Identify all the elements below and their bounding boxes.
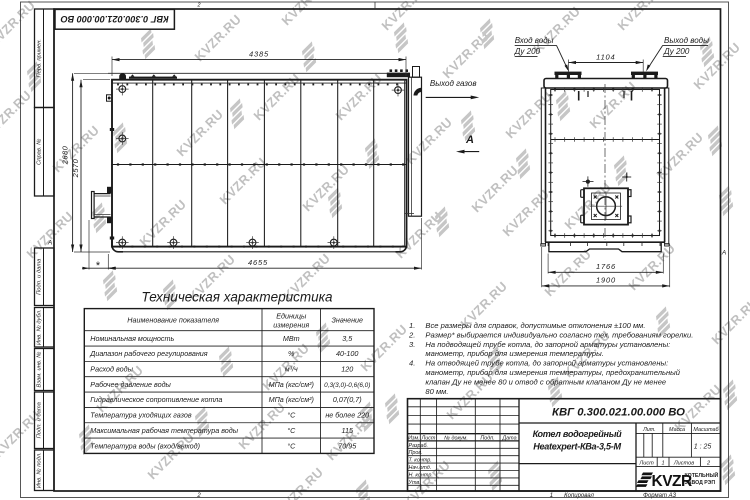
svg-text:KVZR.RU: KVZR.RU xyxy=(173,106,226,159)
svg-text:Взам. инв. №: Взам. инв. № xyxy=(37,352,43,388)
svg-text:KVZR.RU: KVZR.RU xyxy=(586,78,639,131)
svg-text:4655: 4655 xyxy=(248,258,268,267)
svg-text:KVZR.RU: KVZR.RU xyxy=(378,0,431,33)
svg-text:Расход воды: Расход воды xyxy=(90,365,133,374)
svg-text:KVZR.RU: KVZR.RU xyxy=(278,0,331,28)
svg-text:KVZR.RU: KVZR.RU xyxy=(216,154,269,207)
svg-text:KVZR.RU: KVZR.RU xyxy=(144,429,197,482)
svg-text:1.: 1. xyxy=(409,321,415,330)
svg-text:1 : 25: 1 : 25 xyxy=(694,443,712,450)
svg-text:KVZR.RU: KVZR.RU xyxy=(502,88,555,141)
svg-text:Диапазон рабочего регулировани: Диапазон рабочего регулирования xyxy=(89,349,208,358)
svg-text:Лист: Лист xyxy=(421,435,436,441)
svg-text:КВГ 0.300.021.00.000 ВО: КВГ 0.300.021.00.000 ВО xyxy=(552,406,685,418)
svg-text:KVZR.RU: KVZR.RU xyxy=(0,87,34,140)
svg-text:80 мм.: 80 мм. xyxy=(425,387,448,396)
svg-text:°С: °С xyxy=(287,441,296,450)
svg-text:манометр, прибор для измерения: манометр, прибор для измерения температу… xyxy=(425,349,603,358)
svg-text:KVZR.RU: KVZR.RU xyxy=(614,0,667,33)
svg-text:3,5: 3,5 xyxy=(342,334,353,343)
svg-text:%: % xyxy=(288,349,295,358)
svg-text:°С: °С xyxy=(287,426,296,435)
svg-text:KVZR.RU: KVZR.RU xyxy=(400,457,453,500)
svg-text:KVZR.RU: KVZR.RU xyxy=(499,186,552,239)
svg-text:А: А xyxy=(465,134,474,146)
svg-text:KVZR.RU: KVZR.RU xyxy=(439,28,492,81)
svg-text:°С: °С xyxy=(287,411,296,420)
svg-text:КОТЕЛЬНЫЙ: КОТЕЛЬНЫЙ xyxy=(685,471,719,479)
svg-text:А: А xyxy=(721,250,726,257)
svg-text:Пров.: Пров. xyxy=(409,450,423,456)
svg-text:Инв. № дубл.: Инв. № дубл. xyxy=(37,309,43,345)
svg-text:Подп.: Подп. xyxy=(480,435,494,441)
svg-text:Выход газов: Выход газов xyxy=(430,79,477,88)
svg-text:2570: 2570 xyxy=(71,158,80,178)
svg-text:Рабочее давление воды: Рабочее давление воды xyxy=(90,380,171,389)
svg-text:МВт: МВт xyxy=(283,334,300,343)
svg-text:115: 115 xyxy=(342,426,354,435)
svg-text:KVZR.RU: KVZR.RU xyxy=(250,70,303,123)
svg-text:МПа (кгс/см²): МПа (кгс/см²) xyxy=(269,380,314,389)
svg-text:KVZR.RU: KVZR.RU xyxy=(541,246,594,299)
svg-text:Масштаб: Масштаб xyxy=(693,427,719,433)
svg-text:Формат А3: Формат А3 xyxy=(643,493,676,499)
svg-text:Все размеры для справок, допус: Все размеры для справок, допустимые откл… xyxy=(425,321,645,330)
svg-text:Перв. примен.: Перв. примен. xyxy=(37,39,43,78)
svg-text:KVZR.RU: KVZR.RU xyxy=(23,208,76,261)
svg-text:КВГ 0.300.021.00.000 ВО: КВГ 0.300.021.00.000 ВО xyxy=(61,14,169,24)
svg-text:измерения: измерения xyxy=(273,320,309,329)
svg-text:На подводящей трубе котла, до: На подводящей трубе котла, до запорной а… xyxy=(425,340,670,349)
svg-text:Дата: Дата xyxy=(501,435,516,441)
svg-text:На отводящей трубе котла, до з: На отводящей трубе котла, до запорной ар… xyxy=(425,359,668,368)
svg-text:2: 2 xyxy=(706,460,711,466)
svg-text:KVZR.RU: KVZR.RU xyxy=(402,114,455,167)
svg-text:120: 120 xyxy=(341,365,353,374)
svg-text:Масса: Масса xyxy=(669,427,685,433)
svg-text:Котел водогрейный: Котел водогрейный xyxy=(533,429,623,439)
svg-text:Размер* выбирается индивидуаль: Размер* выбирается индивидуально согласн… xyxy=(425,330,693,339)
svg-text:4.: 4. xyxy=(409,359,415,368)
svg-text:1: 1 xyxy=(661,460,664,466)
svg-text:Справ. №: Справ. № xyxy=(37,139,43,165)
svg-text:Единицы: Единицы xyxy=(276,311,307,320)
svg-text:Лист: Лист xyxy=(638,460,654,466)
svg-text:Значение: Значение xyxy=(331,316,363,325)
svg-text:Н. контр.: Н. контр. xyxy=(409,472,433,478)
svg-text:2: 2 xyxy=(196,493,201,499)
svg-text:KVZR.RU: KVZR.RU xyxy=(653,129,706,182)
svg-text:Утв.: Утв. xyxy=(408,480,421,486)
svg-text:2: 2 xyxy=(196,3,200,9)
svg-text:МПа (кгс/см²): МПа (кгс/см²) xyxy=(269,395,314,404)
svg-text:1104: 1104 xyxy=(596,52,615,61)
svg-text:KVZR.RU: KVZR.RU xyxy=(708,294,750,347)
svg-text:KVZR.RU: KVZR.RU xyxy=(191,11,244,64)
svg-text:Подп. и дата: Подп. и дата xyxy=(37,401,43,438)
svg-text:А: А xyxy=(47,240,52,247)
svg-text:40-100: 40-100 xyxy=(336,349,358,358)
svg-text:Техническая характеристика: Техническая характеристика xyxy=(141,290,333,305)
svg-text:*: * xyxy=(95,260,100,272)
svg-text:Подп. и дата: Подп. и дата xyxy=(37,258,43,295)
svg-text:KVZR.RU: KVZR.RU xyxy=(0,0,38,50)
svg-text:Температура уходящих газов: Температура уходящих газов xyxy=(90,411,192,420)
svg-text:3.: 3. xyxy=(409,340,415,349)
svg-text:KVZR.RU: KVZR.RU xyxy=(299,161,352,214)
svg-text:Наименование показателя: Наименование показателя xyxy=(127,316,219,325)
svg-text:Максимальная рабочая температу: Максимальная рабочая температура воды xyxy=(90,426,238,435)
svg-text:ЗАВОД РЭП: ЗАВОД РЭП xyxy=(685,480,716,486)
svg-text:KVZR.RU: KVZR.RU xyxy=(625,240,678,293)
svg-text:KVZR.RU: KVZR.RU xyxy=(136,196,189,249)
svg-text:№ докум.: № докум. xyxy=(444,435,468,441)
svg-text:2.: 2. xyxy=(408,330,415,339)
svg-text:1900: 1900 xyxy=(596,276,616,285)
svg-text:1766: 1766 xyxy=(596,262,616,271)
svg-text:клапан Ду не менее 80 и отвод: клапан Ду не менее 80 и отвод с обратным… xyxy=(425,377,666,386)
svg-text:0,3(3,0)-0,6(6,0): 0,3(3,0)-0,6(6,0) xyxy=(324,382,370,389)
svg-text:KVZR.RU: KVZR.RU xyxy=(690,39,743,92)
svg-text:1: 1 xyxy=(550,493,553,499)
svg-text:Копировал: Копировал xyxy=(564,493,594,499)
svg-text:4385: 4385 xyxy=(249,50,269,59)
svg-text:Гидравлическое сопротивление к: Гидравлическое сопротивление котла xyxy=(90,395,222,404)
svg-text:KVZR.RU: KVZR.RU xyxy=(468,162,521,215)
svg-text:Номинальная мощность: Номинальная мощность xyxy=(90,334,174,343)
svg-text:KVZR.RU: KVZR.RU xyxy=(273,464,326,500)
svg-text:Температура воды (вход/выход): Температура воды (вход/выход) xyxy=(90,441,200,450)
svg-text:0,07(0,7): 0,07(0,7) xyxy=(333,395,362,404)
svg-text:Heatexpert-КВа-3,5-М: Heatexpert-КВа-3,5-М xyxy=(533,442,621,452)
svg-text:Вход воды: Вход воды xyxy=(515,36,554,45)
svg-text:Инв. № подл.: Инв. № подл. xyxy=(37,452,43,488)
svg-text:Ду 200: Ду 200 xyxy=(514,47,541,56)
svg-text:Листов: Листов xyxy=(673,460,694,466)
svg-text:м³/ч: м³/ч xyxy=(285,365,298,374)
svg-text:Нач.отд.: Нач.отд. xyxy=(409,465,432,471)
svg-text:не более 220: не более 220 xyxy=(325,411,369,420)
svg-text:Лит.: Лит. xyxy=(642,427,656,433)
svg-text:Т. контр.: Т. контр. xyxy=(409,458,432,464)
svg-text:KVZR.RU: KVZR.RU xyxy=(357,321,410,374)
svg-text:Ду 200: Ду 200 xyxy=(663,47,690,56)
svg-text:Выход воды: Выход воды xyxy=(664,36,709,45)
svg-text:манометр, прибор для измерения: манометр, прибор для измерения температу… xyxy=(425,368,680,377)
svg-text:Изм.: Изм. xyxy=(408,435,420,441)
svg-text:70/95: 70/95 xyxy=(338,441,357,450)
svg-text:2680: 2680 xyxy=(60,145,69,165)
svg-text:KVZR.RU: KVZR.RU xyxy=(332,70,385,123)
svg-text:Разраб.: Разраб. xyxy=(409,443,429,449)
